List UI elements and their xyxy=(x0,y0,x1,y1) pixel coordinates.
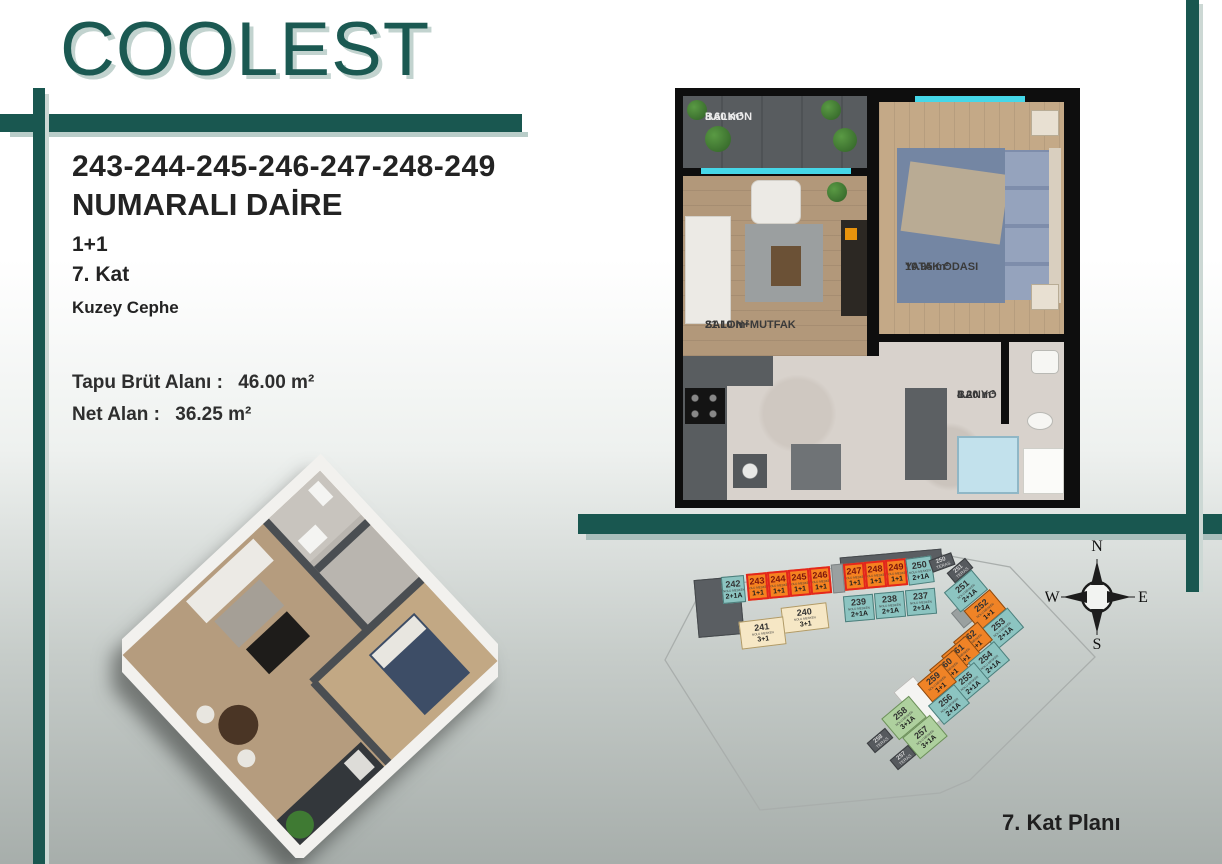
nightstand xyxy=(1031,110,1059,136)
plant-icon xyxy=(827,182,847,202)
site-unit-249: 249NOLU MESKEN1+1 xyxy=(885,558,908,587)
svg-text:W: W xyxy=(1045,589,1060,606)
bathroom-door xyxy=(1023,448,1064,494)
site-unit-243: 243NOLU MESKEN1+1 xyxy=(746,572,769,601)
coffee-table xyxy=(771,246,801,286)
site-unit-248: 248NOLU MESKEN1+1 xyxy=(864,560,887,589)
wall xyxy=(1001,342,1009,424)
plant-icon xyxy=(687,100,707,120)
net-area-label: Net Alan : xyxy=(72,404,160,425)
pillows xyxy=(1005,150,1049,300)
blanket xyxy=(901,161,1010,244)
window-balcony xyxy=(701,168,851,174)
toilet xyxy=(1027,412,1053,430)
site-unit-245: 245NOLU MESKEN1+1 xyxy=(788,568,811,597)
svg-text:S: S xyxy=(1093,636,1102,653)
plant-icon xyxy=(821,100,841,120)
headboard xyxy=(1049,148,1061,303)
kitchen-counter xyxy=(683,356,773,386)
gross-area-value: 46.00 m² xyxy=(238,372,314,393)
sofa xyxy=(685,216,731,324)
armchair xyxy=(751,180,801,224)
layout-type: 1+1 xyxy=(72,233,108,257)
gross-area-line: Tapu Brüt Alanı : 46.00 m² xyxy=(72,372,314,394)
divider-shadow xyxy=(10,132,528,137)
divider-horizontal-right xyxy=(578,514,1222,534)
site-unit-237: 237NOLU MESKEN2+1A xyxy=(905,588,937,617)
stove xyxy=(685,388,725,424)
svg-text:E: E xyxy=(1138,589,1148,606)
brand-logo: COOLEST xyxy=(60,6,430,93)
floor-number: 7. Kat xyxy=(72,263,129,287)
kitchen-sink xyxy=(733,454,767,488)
net-area-line: Net Alan : 36.25 m² xyxy=(72,404,251,426)
site-unit-242: 242NOLU MESKEN2+1A xyxy=(721,575,746,604)
svg-text:N: N xyxy=(1091,538,1103,555)
cabinet xyxy=(791,444,841,490)
wall xyxy=(971,334,1064,342)
divider-vertical-right xyxy=(1186,0,1199,592)
plant-icon xyxy=(705,126,731,152)
net-area-value: 36.25 m² xyxy=(175,404,251,425)
compass-rose: N S W E xyxy=(1045,535,1149,653)
unit-numbers-heading: 243-244-245-246-247-248-249 xyxy=(72,150,496,184)
site-unit-239: 239NOLU MESKEN2+1A xyxy=(843,594,875,623)
shower xyxy=(957,436,1019,494)
tv-accent xyxy=(845,228,857,240)
site-plan-caption: 7. Kat Planı xyxy=(1002,810,1121,836)
divider-shadow xyxy=(1199,4,1203,592)
wardrobe xyxy=(905,388,947,480)
floor-plan-2d: BALKON3.60 m² YATAK ODASI10.95 m² SALON+… xyxy=(675,88,1080,508)
window-bedroom xyxy=(915,96,1025,102)
site-unit-244: 244NOLU MESKEN1+1 xyxy=(767,570,790,599)
divider-vertical-left xyxy=(33,88,45,864)
site-unit-246: 246NOLU MESKEN1+1 xyxy=(809,566,832,595)
apartment-3d-render xyxy=(122,452,498,858)
divider-horizontal-top xyxy=(0,114,522,132)
site-unit-238: 238NOLU MESKEN2+1A xyxy=(874,591,906,620)
site-unit-247: 247NOLU MESKEN1+1 xyxy=(843,562,866,591)
site-unit-240: 240NOLU MESKEN3+1 xyxy=(781,602,830,633)
heading-numarali-daire: NUMARALI DAİRE xyxy=(72,187,342,223)
bathroom-sink xyxy=(1031,350,1059,374)
divider-shadow xyxy=(45,94,49,864)
wall xyxy=(867,96,879,342)
site-unit-241: 241NOLU MESKEN3+1 xyxy=(738,616,786,649)
plant-icon xyxy=(833,128,857,152)
gross-area-label: Tapu Brüt Alanı : xyxy=(72,372,223,393)
wall xyxy=(879,334,939,342)
facade-direction: Kuzey Cephe xyxy=(72,298,179,318)
brochure-page: COOLEST 243-244-245-246-247-248-249 NUMA… xyxy=(0,0,1222,864)
nightstand xyxy=(1031,284,1059,310)
